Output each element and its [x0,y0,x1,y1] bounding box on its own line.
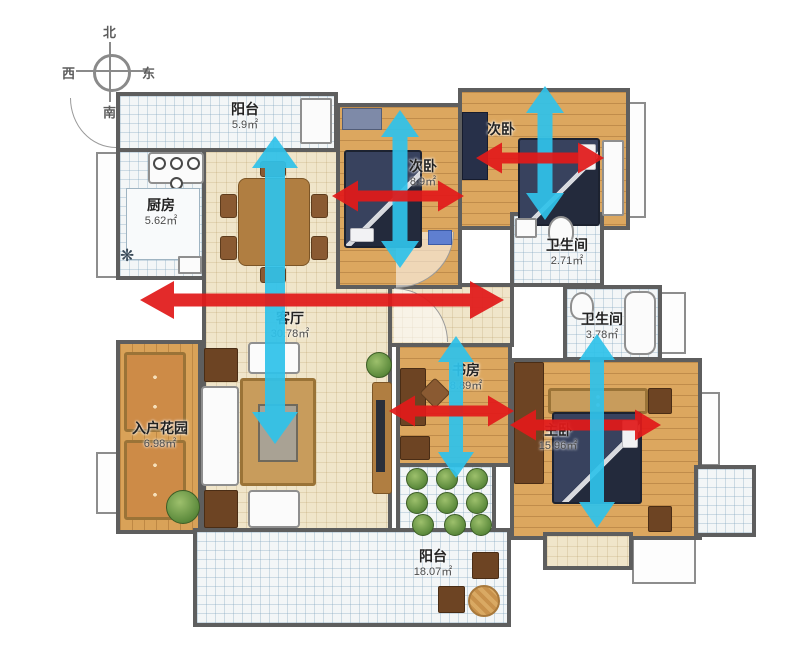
wardrobe [602,140,624,216]
compass-east-label: 东 [142,63,155,82]
plant [436,492,458,514]
tv [376,400,385,472]
desk-item [428,230,452,245]
compass-west-label: 西 [62,63,75,82]
plant [466,468,488,490]
label-bedroom2-mid: 次卧 8.9㎡ [385,158,461,189]
room-name: 入户花园 [122,420,198,438]
label-balcony-bottom: 阳台 18.07㎡ [388,548,478,579]
desk [400,368,426,426]
room-name: 厨房 [126,197,196,215]
room-name: 卫生间 [527,237,607,255]
armchair [248,490,300,528]
balcony-round-table [468,585,500,617]
label-master: 主卧 15.96㎡ [520,422,596,453]
master-head-rug [548,388,648,414]
room-name: 阳台 [200,101,290,119]
armchair [248,342,300,374]
room-closet-right [694,465,756,537]
dining-chair [311,194,328,218]
dining-chair [260,267,286,283]
label-foyer-garden: 入户花园 6.98㎡ [122,420,198,451]
room-name: 次卧 [470,121,532,139]
plant [412,514,434,536]
room-area: 2.71㎡ [527,255,607,269]
sofa [201,386,239,486]
compass-ring [93,54,131,92]
wardrobe [342,108,382,130]
label-bedroom2-right: 次卧 [470,121,532,139]
window-sill-bath-right [658,292,686,354]
plant [406,492,428,514]
plant [366,352,392,378]
pillow [622,420,638,448]
room-area: 5.62㎡ [126,215,196,229]
pillow [578,144,596,170]
balcony-table [438,586,465,613]
room-name: 次卧 [385,158,461,176]
room-name: 阳台 [388,548,478,566]
plant [470,514,492,536]
room-name: 书房 [428,362,504,380]
water-heater [300,98,332,144]
dining-table [238,178,310,266]
stove-burner [187,157,200,170]
label-living: 客厅 30.78㎡ [250,310,330,341]
window-sill-bedroom-right [628,102,646,218]
bookshelf [400,436,430,460]
window-sill-master-right [700,392,720,466]
compass-north-label: 北 [103,22,116,41]
dining-chair [220,194,237,218]
room-name: 客厅 [250,310,330,328]
kitchen-appliance [178,256,202,274]
nightstand [648,388,672,414]
kitchen-sink-icon: ❋ [120,246,140,266]
room-master-bay-window [543,532,633,570]
window-sill-foyer-left [96,452,118,514]
room-area: 8.9㎡ [385,176,461,190]
nightstand [648,506,672,532]
window-sill-bottom-right [632,536,696,584]
side-table [204,348,238,382]
label-kitchen: 厨房 5.62㎡ [126,197,196,228]
compass: 北 西 东 南 [60,14,170,119]
plant [436,468,458,490]
plant [406,468,428,490]
side-table [204,490,238,528]
plant [166,490,200,524]
plant [466,492,488,514]
room-area: 8.89㎡ [428,380,504,394]
dining-chair [260,161,286,177]
stove-burner [170,157,183,170]
window-sill-kitchen-left [96,152,118,278]
room-area: 15.96㎡ [520,440,596,454]
label-study: 书房 8.89㎡ [428,362,504,393]
stove-burner [153,157,166,170]
room-name: 卫生间 [562,311,642,329]
room-area: 30.78㎡ [250,328,330,342]
sink [515,218,537,238]
stove [148,152,204,184]
room-area: 5.9㎡ [200,119,290,133]
compass-south-label: 南 [103,102,116,121]
room-area: 3.78㎡ [562,329,642,343]
room-area: 18.07㎡ [388,566,478,580]
label-bath-small: 卫生间 2.71㎡ [527,237,607,268]
floorplan-canvas: 北 西 东 南 ❋ [0,0,810,653]
room-name: 主卧 [520,422,596,440]
dining-chair [311,236,328,260]
label-bath-big: 卫生间 3.78㎡ [562,311,642,342]
coffee-table [258,404,298,462]
plant [444,514,466,536]
label-balcony-top: 阳台 5.9㎡ [200,101,290,132]
pillow [350,228,374,242]
room-area: 6.98㎡ [122,438,198,452]
dining-chair [220,236,237,260]
